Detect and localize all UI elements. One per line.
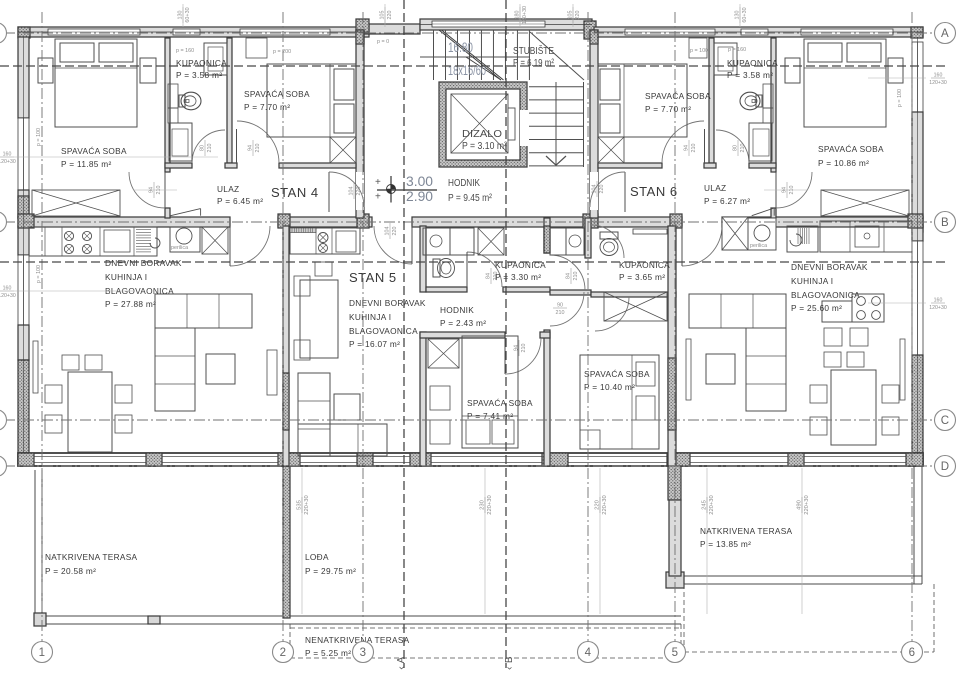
svg-text:210: 210 [573, 272, 579, 281]
svg-text:KUHINJA I: KUHINJA I [105, 272, 147, 282]
svg-text:3: 3 [360, 647, 367, 659]
svg-text:120+30: 120+30 [522, 6, 528, 24]
svg-text:B: B [941, 217, 949, 229]
svg-text:perilica: perilica [171, 245, 188, 251]
svg-text:P = 2.43 m²: P = 2.43 m² [440, 318, 486, 328]
svg-text:120+30: 120+30 [0, 159, 16, 165]
svg-text:BLAGOVAONICA: BLAGOVAONICA [349, 326, 418, 336]
svg-text:60+30: 60+30 [185, 7, 191, 22]
svg-text:SPAVAĆA SOBA: SPAVAĆA SOBA [467, 398, 533, 408]
svg-text:P = 29.75 m²: P = 29.75 m² [305, 566, 356, 576]
svg-text:210: 210 [521, 344, 527, 353]
svg-text:105: 105 [568, 11, 574, 20]
svg-text:STUBIŠTE: STUBIŠTE [513, 44, 554, 57]
svg-text:94: 94 [248, 145, 254, 151]
svg-text:P = 10.40 m²: P = 10.40 m² [584, 382, 635, 392]
svg-text:P = 3.10 m²: P = 3.10 m² [462, 141, 508, 152]
svg-text:90: 90 [557, 303, 563, 309]
svg-text:2: 2 [280, 647, 287, 659]
svg-text:A: A [941, 28, 949, 40]
svg-text:84: 84 [486, 273, 492, 279]
svg-text:P = 5.25 m²: P = 5.25 m² [305, 648, 351, 658]
svg-text:120+30: 120+30 [929, 305, 947, 311]
svg-text:60+30: 60+30 [742, 7, 748, 22]
svg-text:P = 3.58 m²: P = 3.58 m² [176, 70, 222, 80]
svg-text:P = 6.27 m²: P = 6.27 m² [704, 196, 750, 206]
svg-text:160: 160 [934, 73, 943, 79]
svg-text:4: 4 [585, 647, 592, 659]
svg-text:STAN 6: STAN 6 [630, 184, 678, 199]
svg-text:220: 220 [595, 500, 601, 510]
svg-text:P = 6.45 m²: P = 6.45 m² [217, 196, 263, 206]
svg-text:5: 5 [672, 647, 679, 659]
svg-text:16.80: 16.80 [448, 40, 473, 55]
svg-text:DIZALO: DIZALO [462, 129, 502, 140]
svg-text:BLAGOVAONICA: BLAGOVAONICA [791, 290, 860, 300]
svg-text:1: 1 [39, 647, 46, 659]
svg-text:ULAZ: ULAZ [217, 184, 239, 194]
svg-text:+: + [375, 177, 381, 188]
svg-text:120+30: 120+30 [0, 293, 16, 299]
svg-text:NATKRIVENA TERASA: NATKRIVENA TERASA [45, 552, 138, 562]
svg-text:2.90: 2.90 [406, 189, 433, 204]
svg-text:490: 490 [797, 500, 803, 510]
svg-text:p = 100: p = 100 [36, 265, 42, 283]
svg-text:‹ A: ‹ A [396, 656, 407, 669]
svg-text:LOĐA: LOĐA [305, 552, 329, 562]
svg-text:210: 210 [691, 144, 697, 153]
svg-text:220: 220 [387, 11, 393, 20]
svg-text:220+30: 220+30 [304, 495, 310, 515]
svg-text:SPAVAĆA SOBA: SPAVAĆA SOBA [584, 369, 650, 379]
svg-text:P = 27.88 m²: P = 27.88 m² [105, 299, 156, 309]
svg-text:KUHINJA I: KUHINJA I [349, 312, 391, 322]
svg-text:80: 80 [733, 145, 739, 151]
svg-text:80: 80 [200, 145, 206, 151]
svg-text:160: 160 [934, 298, 943, 304]
svg-text:p = 160: p = 160 [176, 48, 194, 54]
svg-text:C: C [941, 415, 950, 427]
svg-text:p = 100: p = 100 [897, 89, 903, 107]
svg-text:DNEVNI BORAVAK: DNEVNI BORAVAK [349, 298, 426, 308]
svg-text:94: 94 [684, 145, 690, 151]
svg-text:220: 220 [599, 185, 605, 194]
svg-text:220+30: 220+30 [804, 495, 810, 515]
svg-text:ULAZ: ULAZ [704, 183, 726, 193]
svg-text:84: 84 [566, 273, 572, 279]
svg-text:220: 220 [356, 187, 362, 196]
svg-text:210: 210 [740, 144, 746, 153]
svg-text:220+30: 220+30 [487, 495, 493, 515]
svg-text:P = 11.85 m²: P = 11.85 m² [61, 159, 112, 169]
svg-text:220: 220 [575, 11, 581, 20]
svg-text:535: 535 [297, 500, 303, 510]
svg-text:3.00: 3.00 [406, 174, 433, 189]
svg-text:P = 13.85 m²: P = 13.85 m² [700, 539, 751, 549]
svg-text:245: 245 [702, 500, 708, 510]
svg-text:DNEVNI BORAVAK: DNEVNI BORAVAK [791, 262, 868, 272]
svg-text:perilica: perilica [750, 243, 767, 249]
svg-text:160: 160 [3, 152, 12, 158]
svg-text:220: 220 [392, 227, 398, 236]
svg-text:P = 7.70 m²: P = 7.70 m² [645, 104, 691, 114]
svg-text:P = 25.60 m²: P = 25.60 m² [791, 303, 842, 313]
svg-text:SPAVAĆA SOBA: SPAVAĆA SOBA [61, 146, 127, 156]
svg-text:210: 210 [207, 144, 213, 153]
svg-text:SPAVAĆA SOBA: SPAVAĆA SOBA [818, 144, 884, 154]
svg-text:p = 100: p = 100 [36, 128, 42, 146]
svg-text:P = 20.58 m²: P = 20.58 m² [45, 566, 96, 576]
svg-text:P = 9.45 m²: P = 9.45 m² [448, 193, 493, 204]
svg-text:180: 180 [515, 11, 521, 20]
svg-text:DNEVNI BORAVAK: DNEVNI BORAVAK [105, 258, 182, 268]
svg-text:104: 104 [385, 227, 391, 236]
svg-text:KUHINJA I: KUHINJA I [791, 276, 833, 286]
svg-text:94: 94 [514, 345, 520, 351]
svg-text:SPAVAĆA SOBA: SPAVAĆA SOBA [244, 89, 310, 99]
svg-text:210: 210 [255, 144, 261, 153]
svg-text:NATKRIVENA TERASA: NATKRIVENA TERASA [700, 526, 793, 536]
svg-text:230: 230 [480, 500, 486, 510]
svg-text:130: 130 [735, 11, 741, 20]
svg-text:‹ B: ‹ B [504, 656, 515, 670]
svg-text:210: 210 [493, 272, 499, 281]
svg-text:220+30: 220+30 [602, 495, 608, 515]
svg-text:p = 0: p = 0 [377, 39, 389, 45]
svg-text:130: 130 [178, 11, 184, 20]
svg-text:6: 6 [909, 647, 916, 659]
svg-text:SPAVAĆA SOBA: SPAVAĆA SOBA [645, 91, 711, 101]
svg-text:p = 100: p = 100 [690, 48, 708, 54]
svg-text:HODNIK: HODNIK [440, 305, 474, 315]
svg-text:P = 3.58 m²: P = 3.58 m² [727, 70, 773, 80]
svg-text:104: 104 [349, 187, 355, 196]
svg-text:210: 210 [556, 310, 565, 316]
svg-text:105: 105 [380, 11, 386, 20]
svg-text:P = 3.65 m²: P = 3.65 m² [619, 272, 665, 282]
svg-text:STAN 5: STAN 5 [349, 270, 397, 285]
svg-text:18x16/60: 18x16/60 [448, 63, 486, 78]
svg-text:P = 10.86 m²: P = 10.86 m² [818, 158, 869, 168]
svg-text:+: + [375, 192, 381, 203]
svg-text:220+30: 220+30 [709, 495, 715, 515]
svg-text:P = 6.19 m²: P = 6.19 m² [513, 58, 555, 69]
svg-text:P = 16.07 m²: P = 16.07 m² [349, 339, 400, 349]
svg-text:120+30: 120+30 [929, 80, 947, 86]
svg-text:HODNIK: HODNIK [448, 178, 480, 189]
svg-text:104: 104 [592, 185, 598, 194]
svg-text:P = 3.30 m²: P = 3.30 m² [495, 272, 541, 282]
svg-text:p = 200: p = 200 [273, 49, 291, 55]
svg-text:D: D [941, 461, 950, 473]
svg-text:STAN 4: STAN 4 [271, 185, 319, 200]
svg-text:p = 160: p = 160 [728, 47, 746, 53]
svg-text:160: 160 [3, 286, 12, 292]
